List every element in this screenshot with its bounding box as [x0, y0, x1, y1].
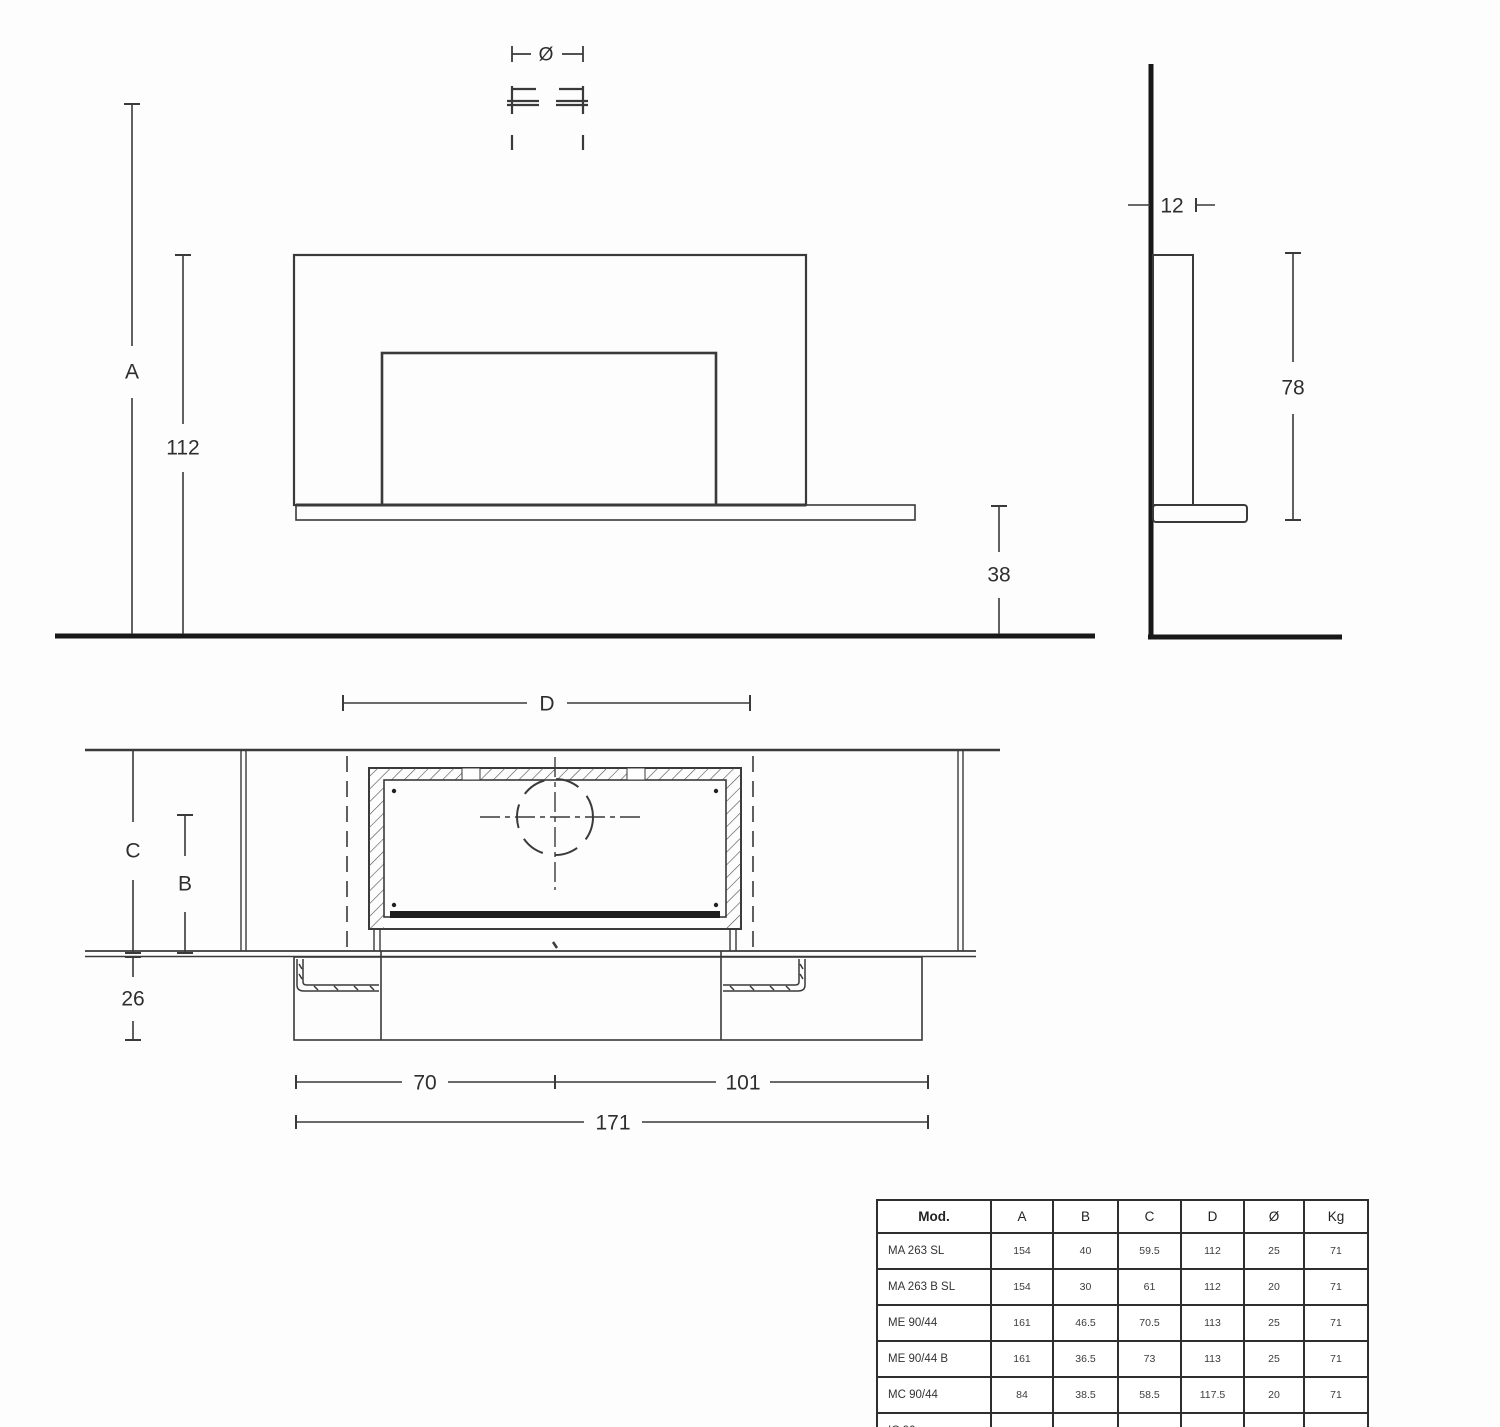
column-header-b: B	[1053, 1200, 1118, 1233]
side-body-outline	[1153, 255, 1193, 505]
table-cell: 30	[1053, 1269, 1118, 1305]
table-cell: 154	[991, 1233, 1053, 1269]
firebox-front-stubs	[374, 929, 736, 951]
table-cell: 25	[1244, 1341, 1304, 1377]
front-view: A 112 Ø	[55, 45, 1095, 637]
table-cell: 71	[1304, 1341, 1368, 1377]
column-header-diameter: Ø	[1244, 1200, 1304, 1233]
dim-171-label: 171	[595, 1112, 630, 1135]
table-cell: 38.5	[1053, 1377, 1118, 1413]
dim-12-label: 12	[1160, 195, 1183, 218]
side-view: 12 78	[1128, 64, 1342, 637]
table-cell: 102	[1181, 1413, 1244, 1427]
dim-B-label: B	[178, 873, 192, 896]
table-cell: 58.5	[1118, 1377, 1181, 1413]
table-cell: 25	[1244, 1305, 1304, 1341]
model-name: ME 90/44	[877, 1305, 991, 1341]
fireplace-technical-drawing: A 112 Ø	[0, 0, 1500, 1427]
table-row: MA 263 SL 154 40 59.5 112 25 71	[877, 1233, 1368, 1269]
table-row: MC 90/44 84 38.5 58.5 117.5 20 71	[877, 1377, 1368, 1413]
table-cell: 25	[1244, 1233, 1304, 1269]
dim-flue-diameter-label: Ø	[539, 45, 554, 66]
column-header-d: D	[1181, 1200, 1244, 1233]
model-name: MA 263 SL	[877, 1233, 991, 1269]
table-cell: 113	[1181, 1305, 1244, 1341]
table-cell: 46.5	[1053, 1305, 1118, 1341]
table-cell: 161	[991, 1341, 1053, 1377]
table-cell: 70.5	[1118, 1305, 1181, 1341]
dim-26-label: 26	[121, 988, 144, 1011]
model-name: MC 90/44	[877, 1377, 991, 1413]
model-name: MA 263 B SL	[877, 1269, 991, 1305]
table-cell: 71	[1304, 1233, 1368, 1269]
firebox-glass-front	[390, 911, 720, 918]
model-name: IC 90	[877, 1413, 991, 1427]
dim-101-label: 101	[725, 1072, 760, 1095]
table-cell: 112	[1181, 1233, 1244, 1269]
column-header-c: C	[1118, 1200, 1181, 1233]
front-body-outline	[294, 255, 806, 505]
dim-112-label: 112	[166, 437, 199, 460]
front-shelf	[296, 505, 915, 520]
firebox-top-notch-left	[462, 768, 480, 780]
model-spec-table: Mod. A B C D Ø Kg MA 263 SL 154 40 59.5 …	[876, 1199, 1369, 1427]
table-cell: 73	[1118, 1341, 1181, 1377]
dim-C-label: C	[125, 840, 140, 863]
table-row: IC 90 91.5 32.5 50 102 15 71	[877, 1413, 1368, 1427]
column-header-mod: Mod.	[877, 1200, 991, 1233]
dimension-drawing-canvas: A 112 Ø	[0, 0, 1500, 1160]
table-cell: 154	[991, 1269, 1053, 1305]
dim-70-101	[296, 1075, 928, 1089]
hearth-outline	[294, 957, 922, 1040]
table-cell: 71	[1304, 1413, 1368, 1427]
table-cell: 61	[1118, 1269, 1181, 1305]
plan-opening-projection-lines	[347, 756, 753, 948]
dim-38-label: 38	[987, 564, 1010, 587]
table-row: ME 90/44 B 161 36.5 73 113 25 71	[877, 1341, 1368, 1377]
table-cell: 32.5	[1053, 1413, 1118, 1427]
flue-collar-symbol	[507, 86, 588, 150]
side-shelf	[1153, 505, 1247, 522]
spec-table-header-row: Mod. A B C D Ø Kg	[877, 1200, 1368, 1233]
table-cell: 36.5	[1053, 1341, 1118, 1377]
firebox-top-notch-right	[627, 768, 645, 780]
table-cell: 20	[1244, 1377, 1304, 1413]
table-cell: 15	[1244, 1413, 1304, 1427]
plan-bench-front-edge	[85, 951, 976, 957]
table-cell: 112	[1181, 1269, 1244, 1305]
column-header-kg: Kg	[1304, 1200, 1368, 1233]
table-cell: 59.5	[1118, 1233, 1181, 1269]
table-cell: 117.5	[1181, 1377, 1244, 1413]
column-header-a: A	[991, 1200, 1053, 1233]
dim-A-label: A	[125, 361, 139, 384]
dim-D-label: D	[539, 693, 554, 716]
table-cell: 71	[1304, 1377, 1368, 1413]
table-cell: 84	[991, 1377, 1053, 1413]
table-row: ME 90/44 161 46.5 70.5 113 25 71	[877, 1305, 1368, 1341]
front-hood-opening	[382, 353, 716, 505]
table-cell: 20	[1244, 1269, 1304, 1305]
table-cell: 113	[1181, 1341, 1244, 1377]
dim-78-label: 78	[1281, 377, 1304, 400]
dim-70-label: 70	[413, 1072, 436, 1095]
table-cell: 50	[1118, 1413, 1181, 1427]
plan-view: D	[85, 693, 1000, 1135]
table-cell: 40	[1053, 1233, 1118, 1269]
table-cell: 161	[991, 1305, 1053, 1341]
firebox-wall-hatch-left	[369, 780, 384, 929]
table-cell: 71	[1304, 1305, 1368, 1341]
table-row: MA 263 B SL 154 30 61 112 20 71	[877, 1269, 1368, 1305]
firebox-wall-hatch-right	[726, 780, 741, 929]
corner-bracket-right	[723, 959, 805, 991]
model-name: ME 90/44 B	[877, 1341, 991, 1377]
table-cell: 91.5	[991, 1413, 1053, 1427]
table-cell: 71	[1304, 1269, 1368, 1305]
corner-bracket-left	[297, 959, 379, 991]
